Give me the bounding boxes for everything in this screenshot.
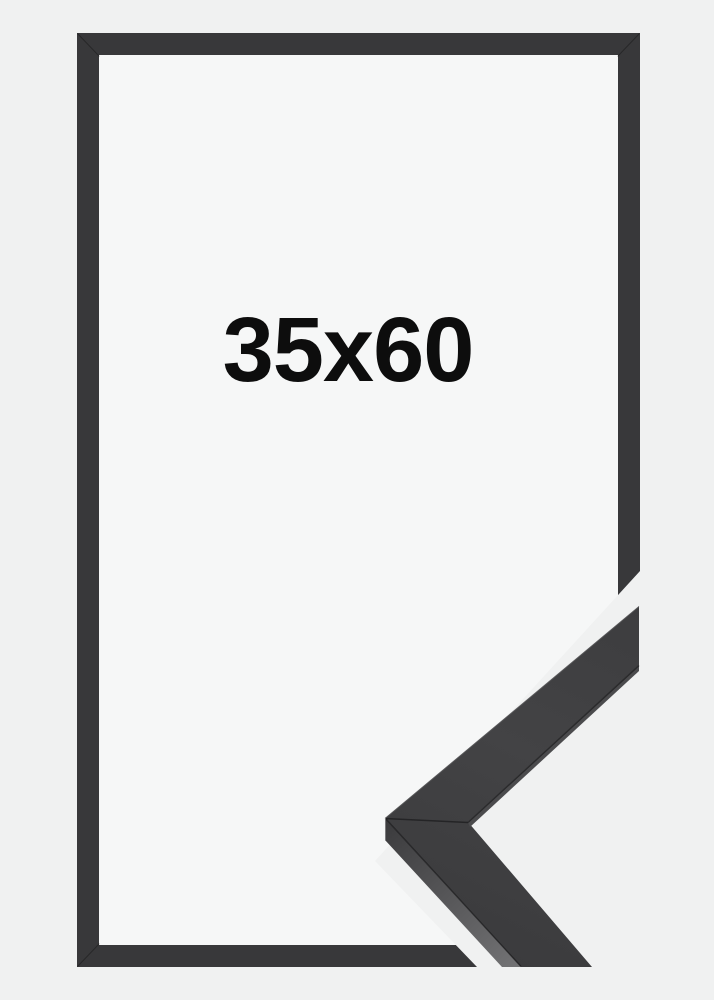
frame-mockup: 35x60 [77, 33, 640, 967]
size-label: 35x60 [223, 304, 474, 396]
product-image: 35x60 [0, 0, 714, 1000]
frame-outline [77, 33, 640, 967]
